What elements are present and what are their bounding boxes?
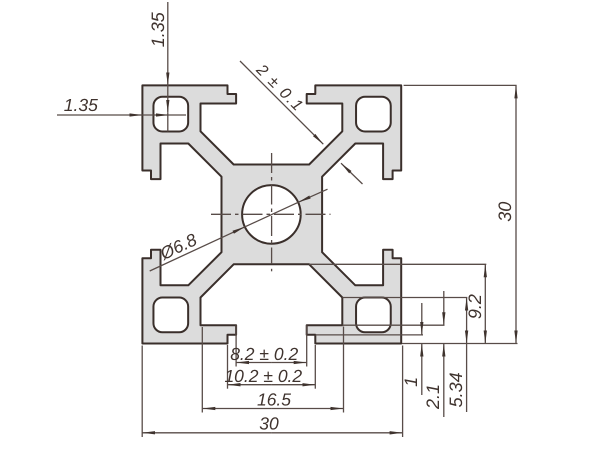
svg-text:1: 1 [401,377,421,387]
svg-text:16.5: 16.5 [257,390,291,410]
svg-text:2 ± 0.1: 2 ± 0.1 [252,61,307,116]
svg-text:1.35: 1.35 [148,11,168,47]
svg-text:30: 30 [259,414,279,434]
svg-text:1.35: 1.35 [64,95,98,115]
svg-text:10.2 ± 0.2: 10.2 ± 0.2 [224,366,302,386]
svg-text:5.34: 5.34 [446,372,466,407]
svg-text:9.2: 9.2 [465,294,485,319]
svg-text:8.2 ± 0.2: 8.2 ± 0.2 [230,344,298,364]
svg-text:30: 30 [495,202,515,222]
svg-text:Ø6.8: Ø6.8 [156,229,200,264]
svg-text:2.1: 2.1 [423,384,443,410]
